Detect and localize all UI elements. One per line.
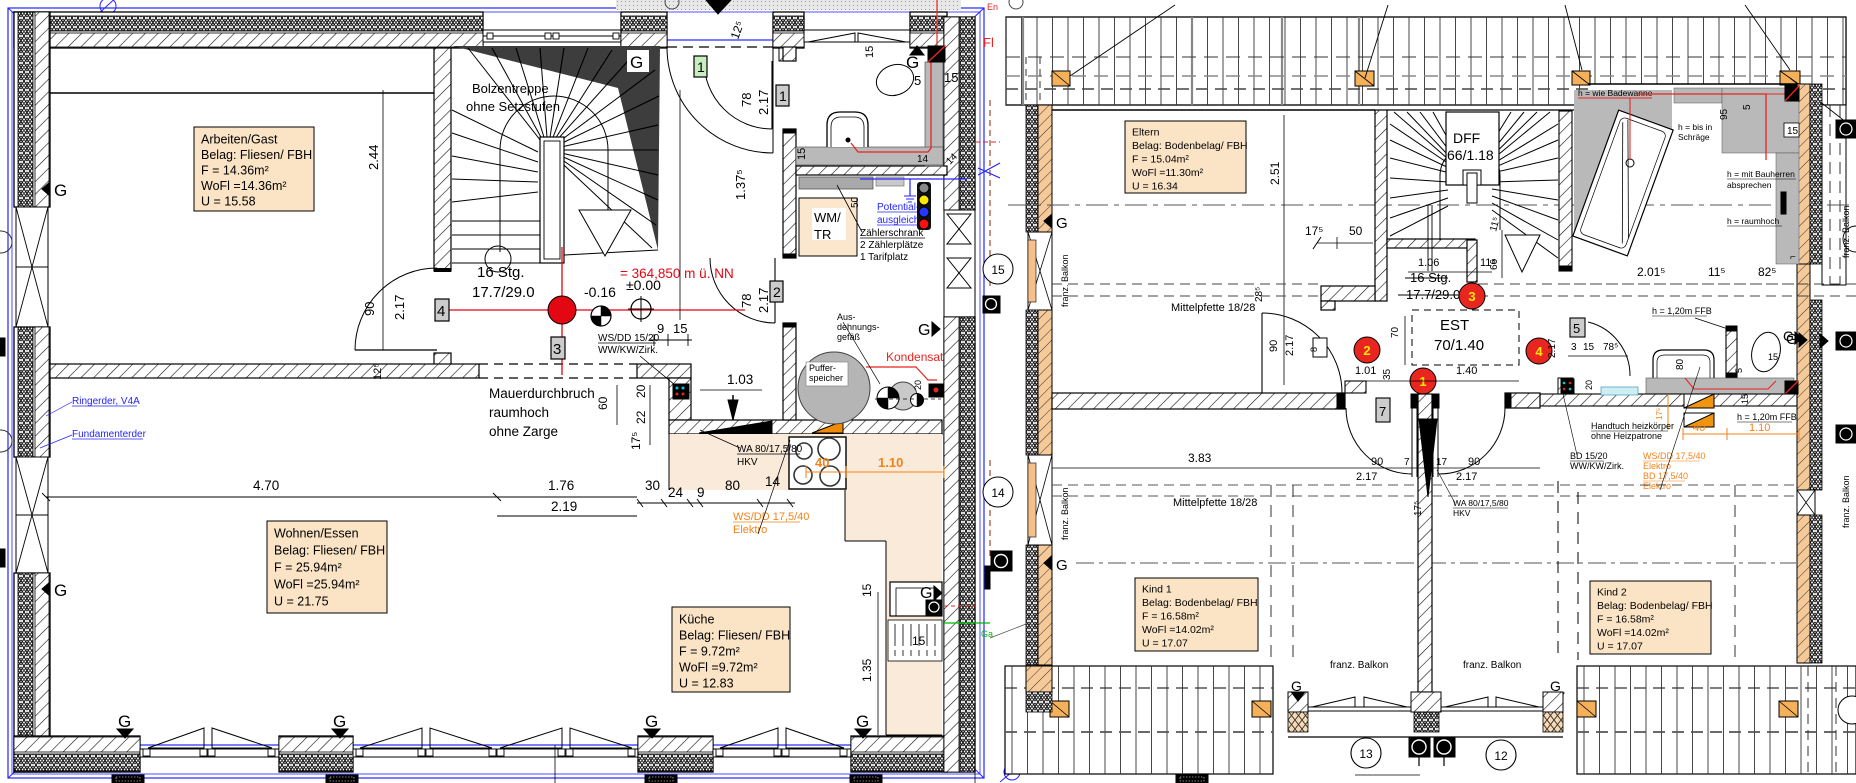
svg-text:F = 25.94m²: F = 25.94m² [274,561,342,575]
svg-text:2.17: 2.17 [1547,338,1558,358]
svg-text:1.01: 1.01 [1355,365,1376,377]
svg-text:F = 16.58m²: F = 16.58m² [1597,614,1654,626]
svg-text:14: 14 [991,486,1005,500]
svg-text:WoFl =14.36m²: WoFl =14.36m² [201,179,287,193]
svg-text:66/1.18: 66/1.18 [1447,147,1494,163]
svg-text:Belag: Fliesen/ FBH: Belag: Fliesen/ FBH [201,148,312,162]
svg-text:9: 9 [657,321,664,336]
svg-text:WoFl =11.30m²: WoFl =11.30m² [1132,167,1204,179]
svg-text:20: 20 [913,380,923,390]
svg-text:1.40: 1.40 [1456,365,1477,377]
svg-text:U = 17.07: U = 17.07 [1142,638,1188,650]
svg-text:WS/DD 15/20: WS/DD 15/20 [598,333,660,344]
svg-text:40: 40 [815,455,829,470]
svg-text:h = mit Bauherren: h = mit Bauherren [1727,169,1795,179]
svg-text:4: 4 [437,303,445,320]
svg-text:20: 20 [634,384,648,398]
svg-text:G: G [333,712,346,731]
svg-text:3: 3 [553,341,561,358]
svg-text:40: 40 [1693,422,1705,434]
svg-text:G: G [54,581,67,600]
svg-text:Mittelpfette 18/28: Mittelpfette 18/28 [1171,302,1255,314]
svg-text:Aus-: Aus- [837,312,856,322]
svg-text:Belag: Fliesen/ FBH: Belag: Fliesen/ FBH [679,629,790,643]
svg-text:Ringerder, V4A: Ringerder, V4A [72,396,140,407]
svg-text:12: 12 [1494,749,1508,763]
svg-text:Eltern: Eltern [1132,127,1160,139]
svg-text:78: 78 [739,294,754,308]
svg-text:3: 3 [1468,289,1475,304]
svg-text:17: 17 [1436,457,1448,468]
svg-text:15: 15 [1768,352,1778,362]
svg-text:17⁵: 17⁵ [1413,501,1424,516]
svg-text:7: 7 [1404,457,1410,468]
svg-text:Elektro: Elektro [1643,481,1671,491]
svg-text:F = 16.58m²: F = 16.58m² [1142,611,1199,623]
svg-text:2.44: 2.44 [366,145,381,170]
svg-text:5: 5 [1573,321,1580,336]
svg-text:WoFl =14.02m²: WoFl =14.02m² [1597,627,1669,639]
svg-text:2.19: 2.19 [551,499,577,514]
svg-text:WW/KW/Zirk.: WW/KW/Zirk. [598,345,658,356]
svg-text:Belag: Fliesen/ FBH: Belag: Fliesen/ FBH [274,544,385,558]
svg-text:17⁵: 17⁵ [1655,408,1664,420]
svg-text:2.17: 2.17 [392,295,407,320]
svg-text:EST: EST [1440,317,1469,334]
svg-text:15: 15 [1787,126,1799,137]
svg-text:G: G [1291,678,1302,694]
svg-text:2: 2 [1363,343,1370,358]
svg-text:2 Zählerplätze: 2 Zählerplätze [860,240,924,251]
svg-text:franz. Balkon: franz. Balkon [1463,660,1521,671]
svg-text:Küche: Küche [679,613,714,627]
svg-text:80: 80 [1675,358,1686,370]
svg-text:G: G [1783,328,1794,344]
svg-text:HKV: HKV [737,457,758,468]
svg-text:h = 1,20m FFB: h = 1,20m FFB [1652,306,1712,316]
svg-text:2.17: 2.17 [756,288,771,313]
svg-text:1.06: 1.06 [1418,257,1439,269]
svg-text:franz. Balkon: franz. Balkon [1060,254,1070,307]
svg-text:28⁵: 28⁵ [1254,287,1265,302]
svg-text:95: 95 [1719,108,1730,120]
svg-text:13: 13 [1359,747,1373,761]
svg-text:Belag: Bodenbelag/ FBH: Belag: Bodenbelag/ FBH [1142,597,1258,609]
svg-text:Potential-: Potential- [877,202,919,213]
svg-text:G: G [906,53,919,72]
svg-text:ausgleich: ausgleich [877,215,919,226]
svg-text:15: 15 [864,46,876,58]
svg-text:G: G [118,712,131,731]
svg-text:F = 9.72m²: F = 9.72m² [679,645,740,659]
svg-text:2.01⁵: 2.01⁵ [1637,265,1665,279]
svg-text:30: 30 [645,478,660,493]
svg-text:5: 5 [1734,368,1744,373]
svg-text:5: 5 [914,73,921,88]
svg-text:1: 1 [697,59,705,75]
svg-text:DFF: DFF [1453,130,1480,146]
svg-text:1.35: 1.35 [860,658,874,682]
svg-text:17⁵: 17⁵ [629,432,643,450]
svg-text:3.83: 3.83 [1188,451,1212,465]
svg-text:9: 9 [697,485,705,500]
svg-text:8: 8 [1309,347,1319,352]
svg-text:WA 80/17,5/80: WA 80/17,5/80 [1453,498,1509,508]
svg-text:Kondensat: Kondensat [886,350,944,364]
svg-text:4: 4 [1535,344,1543,359]
svg-text:U = 21.75: U = 21.75 [274,595,329,609]
svg-text:G: G [54,181,67,200]
svg-text:70/1.40: 70/1.40 [1434,337,1484,354]
svg-text:U = 16.34: U = 16.34 [1132,181,1178,193]
svg-text:20: 20 [1584,380,1594,390]
svg-text:16 Stg.: 16 Stg. [477,264,525,281]
svg-text:h = wie Badewanne: h = wie Badewanne [1578,88,1653,98]
svg-text:absprechen: absprechen [1727,180,1772,190]
svg-text:Elektro: Elektro [733,524,767,536]
svg-text:⌐: ⌐ [1790,252,1796,263]
svg-text:ohne Heizpatrone: ohne Heizpatrone [1591,431,1662,441]
svg-text:14: 14 [917,154,929,165]
svg-text:17⁵: 17⁵ [1305,224,1323,238]
svg-text:3: 3 [1571,342,1577,353]
svg-text:Schräge: Schräge [1678,132,1710,142]
svg-text:66: 66 [1489,258,1500,270]
svg-text:2.51: 2.51 [1268,161,1282,185]
svg-text:U = 17.07: U = 17.07 [1597,641,1643,653]
svg-text:78⁵: 78⁵ [1603,342,1618,353]
svg-text:G: G [856,712,869,731]
svg-text:G: G [1056,215,1068,232]
svg-text:Wohnen/Essen: Wohnen/Essen [274,527,359,541]
svg-text:G: G [645,712,658,731]
svg-text:1.10: 1.10 [878,455,903,470]
svg-text:WA 80/17,5/80: WA 80/17,5/80 [737,444,803,455]
svg-text:1.76: 1.76 [548,478,574,493]
svg-text:h = 1,20m FFB: h = 1,20m FFB [1737,412,1797,422]
svg-text:14: 14 [765,474,781,489]
svg-text:15: 15 [912,634,926,648]
svg-text:WS/DD 17,5/40: WS/DD 17,5/40 [733,511,809,523]
svg-text:2.17: 2.17 [1356,471,1377,483]
svg-text:4.70: 4.70 [253,478,279,493]
svg-text:WoFl =14.02m²: WoFl =14.02m² [1142,624,1214,636]
svg-text:G: G [630,53,643,72]
svg-text:15: 15 [1740,394,1750,404]
svg-text:2.17: 2.17 [1456,471,1477,483]
svg-text:WW/KW/Zirk.: WW/KW/Zirk. [1570,461,1624,471]
svg-text:2: 2 [773,284,781,300]
svg-text:7: 7 [1379,404,1386,419]
svg-text:Arbeiten/Gast: Arbeiten/Gast [201,133,278,147]
svg-text:ohne Setzstufen: ohne Setzstufen [466,99,560,114]
svg-text:speicher: speicher [809,373,843,383]
svg-text:G: G [1056,557,1068,574]
svg-text:90: 90 [1371,456,1383,468]
svg-text:Belag: Bodenbelag/ FBH: Belag: Bodenbelag/ FBH [1597,600,1713,612]
svg-text:En: En [987,2,998,12]
svg-text:1: 1 [779,88,787,104]
svg-text:2.17: 2.17 [756,90,771,115]
svg-text:35: 35 [1382,368,1393,380]
svg-text:BD 15/20: BD 15/20 [1570,451,1608,461]
svg-text:1.37⁵: 1.37⁵ [733,169,748,200]
svg-text:ohne Zarge: ohne Zarge [489,424,558,439]
svg-text:WoFl =25.94m²: WoFl =25.94m² [274,578,360,592]
svg-text:12⁵: 12⁵ [372,363,384,380]
svg-text:TR: TR [814,227,831,242]
svg-text:±0.00: ±0.00 [626,277,661,293]
svg-text:Kind 1: Kind 1 [1142,584,1172,596]
svg-text:90: 90 [362,302,377,316]
svg-text:15: 15 [944,70,958,85]
svg-text:U = 12.83: U = 12.83 [679,677,734,691]
svg-text:Fl: Fl [983,35,994,50]
svg-text:WS/DD 17,5/40: WS/DD 17,5/40 [1643,451,1706,461]
svg-text:gefäß: gefäß [837,332,861,342]
svg-text:-0.16: -0.16 [584,284,616,300]
svg-text:Puffer-: Puffer- [809,363,836,373]
svg-text:WoFl =9.72m²: WoFl =9.72m² [679,661,758,675]
svg-text:78: 78 [739,93,754,107]
svg-text:17.7/29.0: 17.7/29.0 [472,284,535,301]
svg-text:90: 90 [1268,340,1280,352]
svg-text:80: 80 [725,478,740,493]
svg-text:70: 70 [1390,326,1401,338]
svg-text:90: 90 [1468,456,1480,468]
svg-text:50: 50 [1349,224,1363,238]
svg-text:15: 15 [860,583,874,597]
svg-text:15: 15 [991,263,1005,277]
svg-text:F = 15.04m²: F = 15.04m² [1132,154,1189,166]
svg-text:Mittelpfette 18/28: Mittelpfette 18/28 [1173,497,1257,509]
svg-text:Bolzentreppe: Bolzentreppe [472,81,549,96]
svg-text:Belag: Bodenbelag/ FBH: Belag: Bodenbelag/ FBH [1132,140,1248,152]
svg-text:15: 15 [796,148,808,160]
svg-text:franz. Balkon: franz. Balkon [1841,475,1851,528]
svg-text:60: 60 [596,396,610,410]
svg-text:Zählerschrank: Zählerschrank [860,228,924,239]
svg-text:1.10: 1.10 [1749,422,1770,434]
svg-text:Fundamenterder: Fundamenterder [72,429,147,440]
svg-text:Mauerdurchbruch: Mauerdurchbruch [489,386,595,401]
svg-text:1: 1 [1419,374,1426,389]
svg-text:24: 24 [668,485,684,500]
svg-text:G: G [920,585,932,602]
svg-text:h = raumhoch: h = raumhoch [1727,216,1779,226]
svg-text:WM/: WM/ [814,210,841,225]
svg-text:U = 15.58: U = 15.58 [201,195,256,209]
svg-text:82⁵: 82⁵ [1758,265,1776,279]
svg-text:15: 15 [1583,342,1595,353]
svg-text:G: G [918,322,930,339]
svg-text:5: 5 [1742,104,1753,110]
svg-text:2.17: 2.17 [1284,335,1296,356]
svg-text:1.03: 1.03 [727,372,753,387]
svg-text:h = bis in: h = bis in [1678,122,1713,132]
svg-text:dehnungs-: dehnungs- [837,322,880,332]
svg-text:franz. Balkon: franz. Balkon [1330,660,1388,671]
svg-text:15: 15 [673,321,687,336]
svg-text:50: 50 [850,196,861,208]
svg-text:1 Tarifplatz: 1 Tarifplatz [860,252,908,263]
svg-text:Kind 2: Kind 2 [1597,587,1627,599]
svg-text:F = 14.36m²: F = 14.36m² [201,164,269,178]
svg-text:raumhoch: raumhoch [489,405,549,420]
svg-text:11⁵: 11⁵ [1708,265,1725,279]
svg-text:HKV: HKV [1453,508,1471,518]
svg-text:Handtuch heizkörper: Handtuch heizkörper [1591,421,1674,431]
svg-text:22: 22 [634,410,648,424]
svg-text:franz. Balkon: franz. Balkon [1060,487,1070,540]
